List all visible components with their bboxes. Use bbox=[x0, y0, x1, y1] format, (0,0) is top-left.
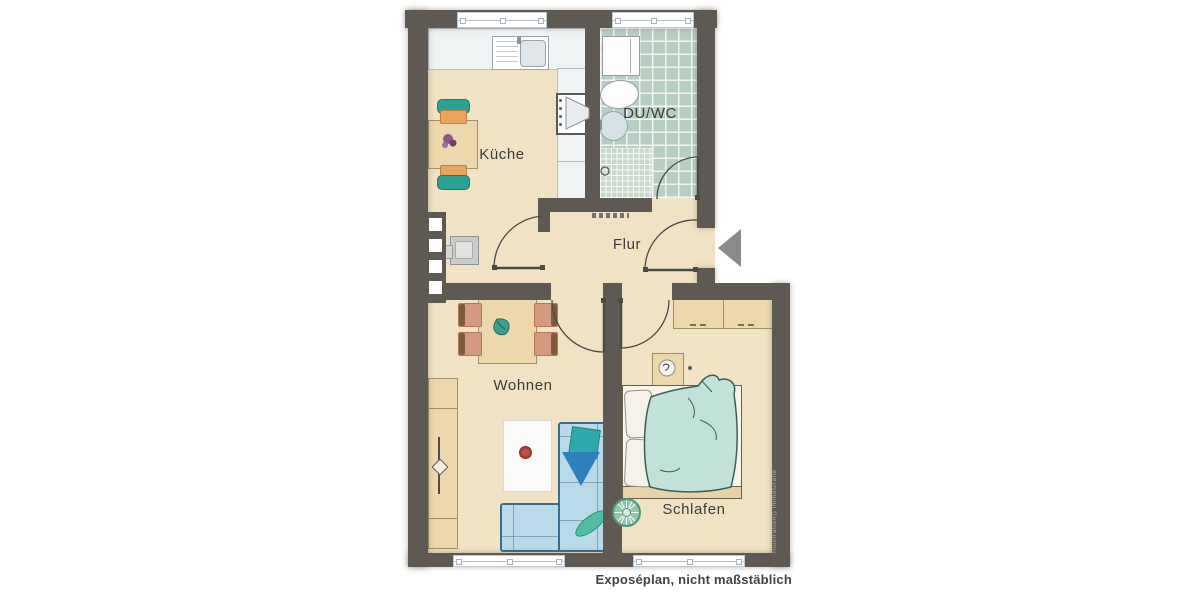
nightstand bbox=[652, 353, 684, 387]
chair-back bbox=[459, 304, 465, 326]
rug-flower-icon bbox=[519, 446, 532, 459]
bath-doormat bbox=[592, 213, 629, 218]
stove-knob bbox=[559, 99, 562, 102]
sofa-armrest-line bbox=[513, 505, 514, 550]
window-handle bbox=[651, 18, 657, 24]
window-handle bbox=[687, 559, 693, 565]
chair-back bbox=[551, 333, 557, 355]
window-handle bbox=[556, 559, 562, 565]
window-kitchen bbox=[457, 12, 547, 28]
doorway-bedroom bbox=[622, 283, 672, 300]
dining-table bbox=[478, 296, 537, 364]
window-handle bbox=[500, 18, 506, 24]
room-label-schlafen: Schlafen bbox=[645, 501, 743, 518]
window-living bbox=[453, 555, 565, 567]
shower-floor bbox=[600, 148, 652, 198]
wardrobe-handle bbox=[748, 324, 754, 326]
wall-kitchen-bath bbox=[585, 28, 600, 198]
hall-fixture-inner bbox=[455, 241, 473, 259]
chair-back bbox=[459, 333, 465, 355]
hall-wall-fixture bbox=[450, 236, 479, 265]
window-handle bbox=[456, 559, 462, 565]
stove bbox=[556, 93, 587, 135]
chimney-hatch bbox=[429, 281, 442, 294]
dining-chair bbox=[458, 303, 482, 327]
sink-tap-icon bbox=[517, 37, 521, 44]
plan-caption: Exposéplan, nicht maßstäblich bbox=[520, 572, 792, 587]
chair-back bbox=[551, 304, 557, 326]
room-label-flur: Flur bbox=[597, 236, 657, 253]
bed-pillow bbox=[624, 438, 654, 487]
room-label-wohnen: Wohnen bbox=[477, 377, 569, 394]
chimney-hatch bbox=[429, 218, 442, 231]
sideboard-divider bbox=[429, 518, 457, 519]
nightstand-dot bbox=[688, 366, 692, 370]
floorplan-canvas: Küche DU/WC Flur Wohnen Schlafen Illustr… bbox=[0, 0, 1200, 600]
window-bedroom bbox=[633, 555, 745, 567]
doorway-entrance bbox=[697, 228, 715, 268]
wall-right-upper bbox=[697, 10, 715, 228]
window-handle bbox=[636, 559, 642, 565]
stove-knob bbox=[559, 115, 562, 118]
watermark-text: Illustration©ImmoGrafik bbox=[771, 455, 790, 567]
wall-bath-bottom bbox=[540, 198, 652, 212]
bed-footboard bbox=[622, 486, 742, 499]
sofa-chaise bbox=[500, 503, 564, 552]
window-handle bbox=[507, 559, 513, 565]
entry-arrow-icon bbox=[718, 229, 741, 267]
window-handle bbox=[538, 18, 544, 24]
sideboard-divider bbox=[429, 408, 457, 409]
dining-chair bbox=[534, 303, 558, 327]
stove-knob bbox=[559, 123, 562, 126]
chimney-hatch bbox=[429, 260, 442, 273]
shower-unit bbox=[602, 36, 640, 76]
window-handle bbox=[736, 559, 742, 565]
bed-pillow bbox=[624, 389, 654, 438]
wall-kitchen-door-stub bbox=[538, 198, 550, 232]
wardrobe-handle bbox=[700, 324, 706, 326]
window-bath bbox=[612, 12, 694, 28]
doorway-living bbox=[551, 283, 603, 300]
window-handle bbox=[685, 18, 691, 24]
dining-chair bbox=[458, 332, 482, 356]
wall-hall-right bbox=[672, 283, 790, 300]
sink-drainboard bbox=[496, 41, 518, 65]
cabinet-divider bbox=[558, 161, 586, 162]
wall-entrance-jamb bbox=[697, 268, 715, 283]
chimney-hatch bbox=[429, 239, 442, 252]
dining-chair bbox=[534, 332, 558, 356]
wardrobe bbox=[673, 297, 774, 329]
wall-hall-center-stub bbox=[603, 283, 622, 300]
shower-door-line bbox=[630, 39, 631, 73]
sink-basin bbox=[520, 40, 546, 67]
sofa-backrest-line bbox=[502, 536, 562, 537]
wardrobe-handle bbox=[690, 324, 696, 326]
kitchen-chair-seat bbox=[440, 110, 467, 124]
window-handle bbox=[615, 18, 621, 24]
wardrobe-divider bbox=[723, 298, 724, 328]
room-label-kueche: Küche bbox=[458, 146, 546, 163]
wall-room-divider bbox=[603, 300, 622, 553]
stove-knob bbox=[559, 107, 562, 110]
window-handle bbox=[460, 18, 466, 24]
kitchen-sink bbox=[492, 36, 549, 70]
kitchen-chair-back bbox=[437, 175, 470, 190]
wardrobe-handle bbox=[738, 324, 744, 326]
room-label-duwc: DU/WC bbox=[603, 105, 697, 122]
